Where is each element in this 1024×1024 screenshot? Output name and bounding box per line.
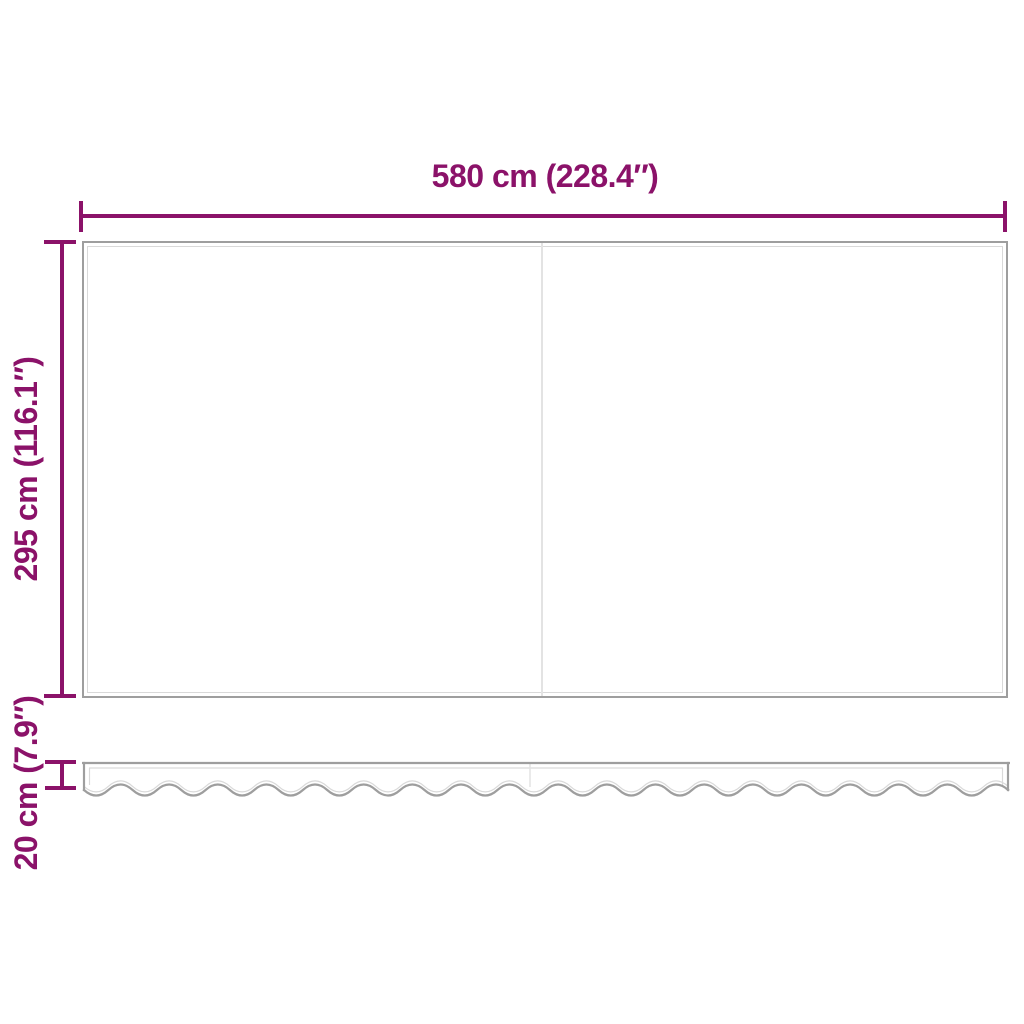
width-dimension-tick-left xyxy=(79,201,83,232)
diagram-canvas: 580 cm (228.4″) 295 cm (116.1″) 20 cm (7… xyxy=(0,0,1024,1024)
awning-fabric-panel xyxy=(82,241,1008,698)
valance-dimension-tick-bottom xyxy=(45,786,76,790)
height-dimension-label: 295 cm (116.1″) xyxy=(6,319,46,619)
width-dimension-label: 580 cm (228.4″) xyxy=(82,156,1008,196)
height-dimension-tick-top xyxy=(44,240,76,244)
fabric-stitch-line xyxy=(87,246,1003,693)
valance-strip xyxy=(82,758,1010,810)
width-dimension-line xyxy=(80,214,1007,218)
valance-dimension-label: 20 cm (7.9″) xyxy=(6,633,46,933)
width-dimension-tick-right xyxy=(1003,201,1007,232)
valance-dimension-tick-top xyxy=(45,760,76,764)
height-dimension-line xyxy=(60,242,64,697)
height-dimension-tick-bottom xyxy=(44,694,76,698)
fabric-center-seam xyxy=(541,243,543,696)
